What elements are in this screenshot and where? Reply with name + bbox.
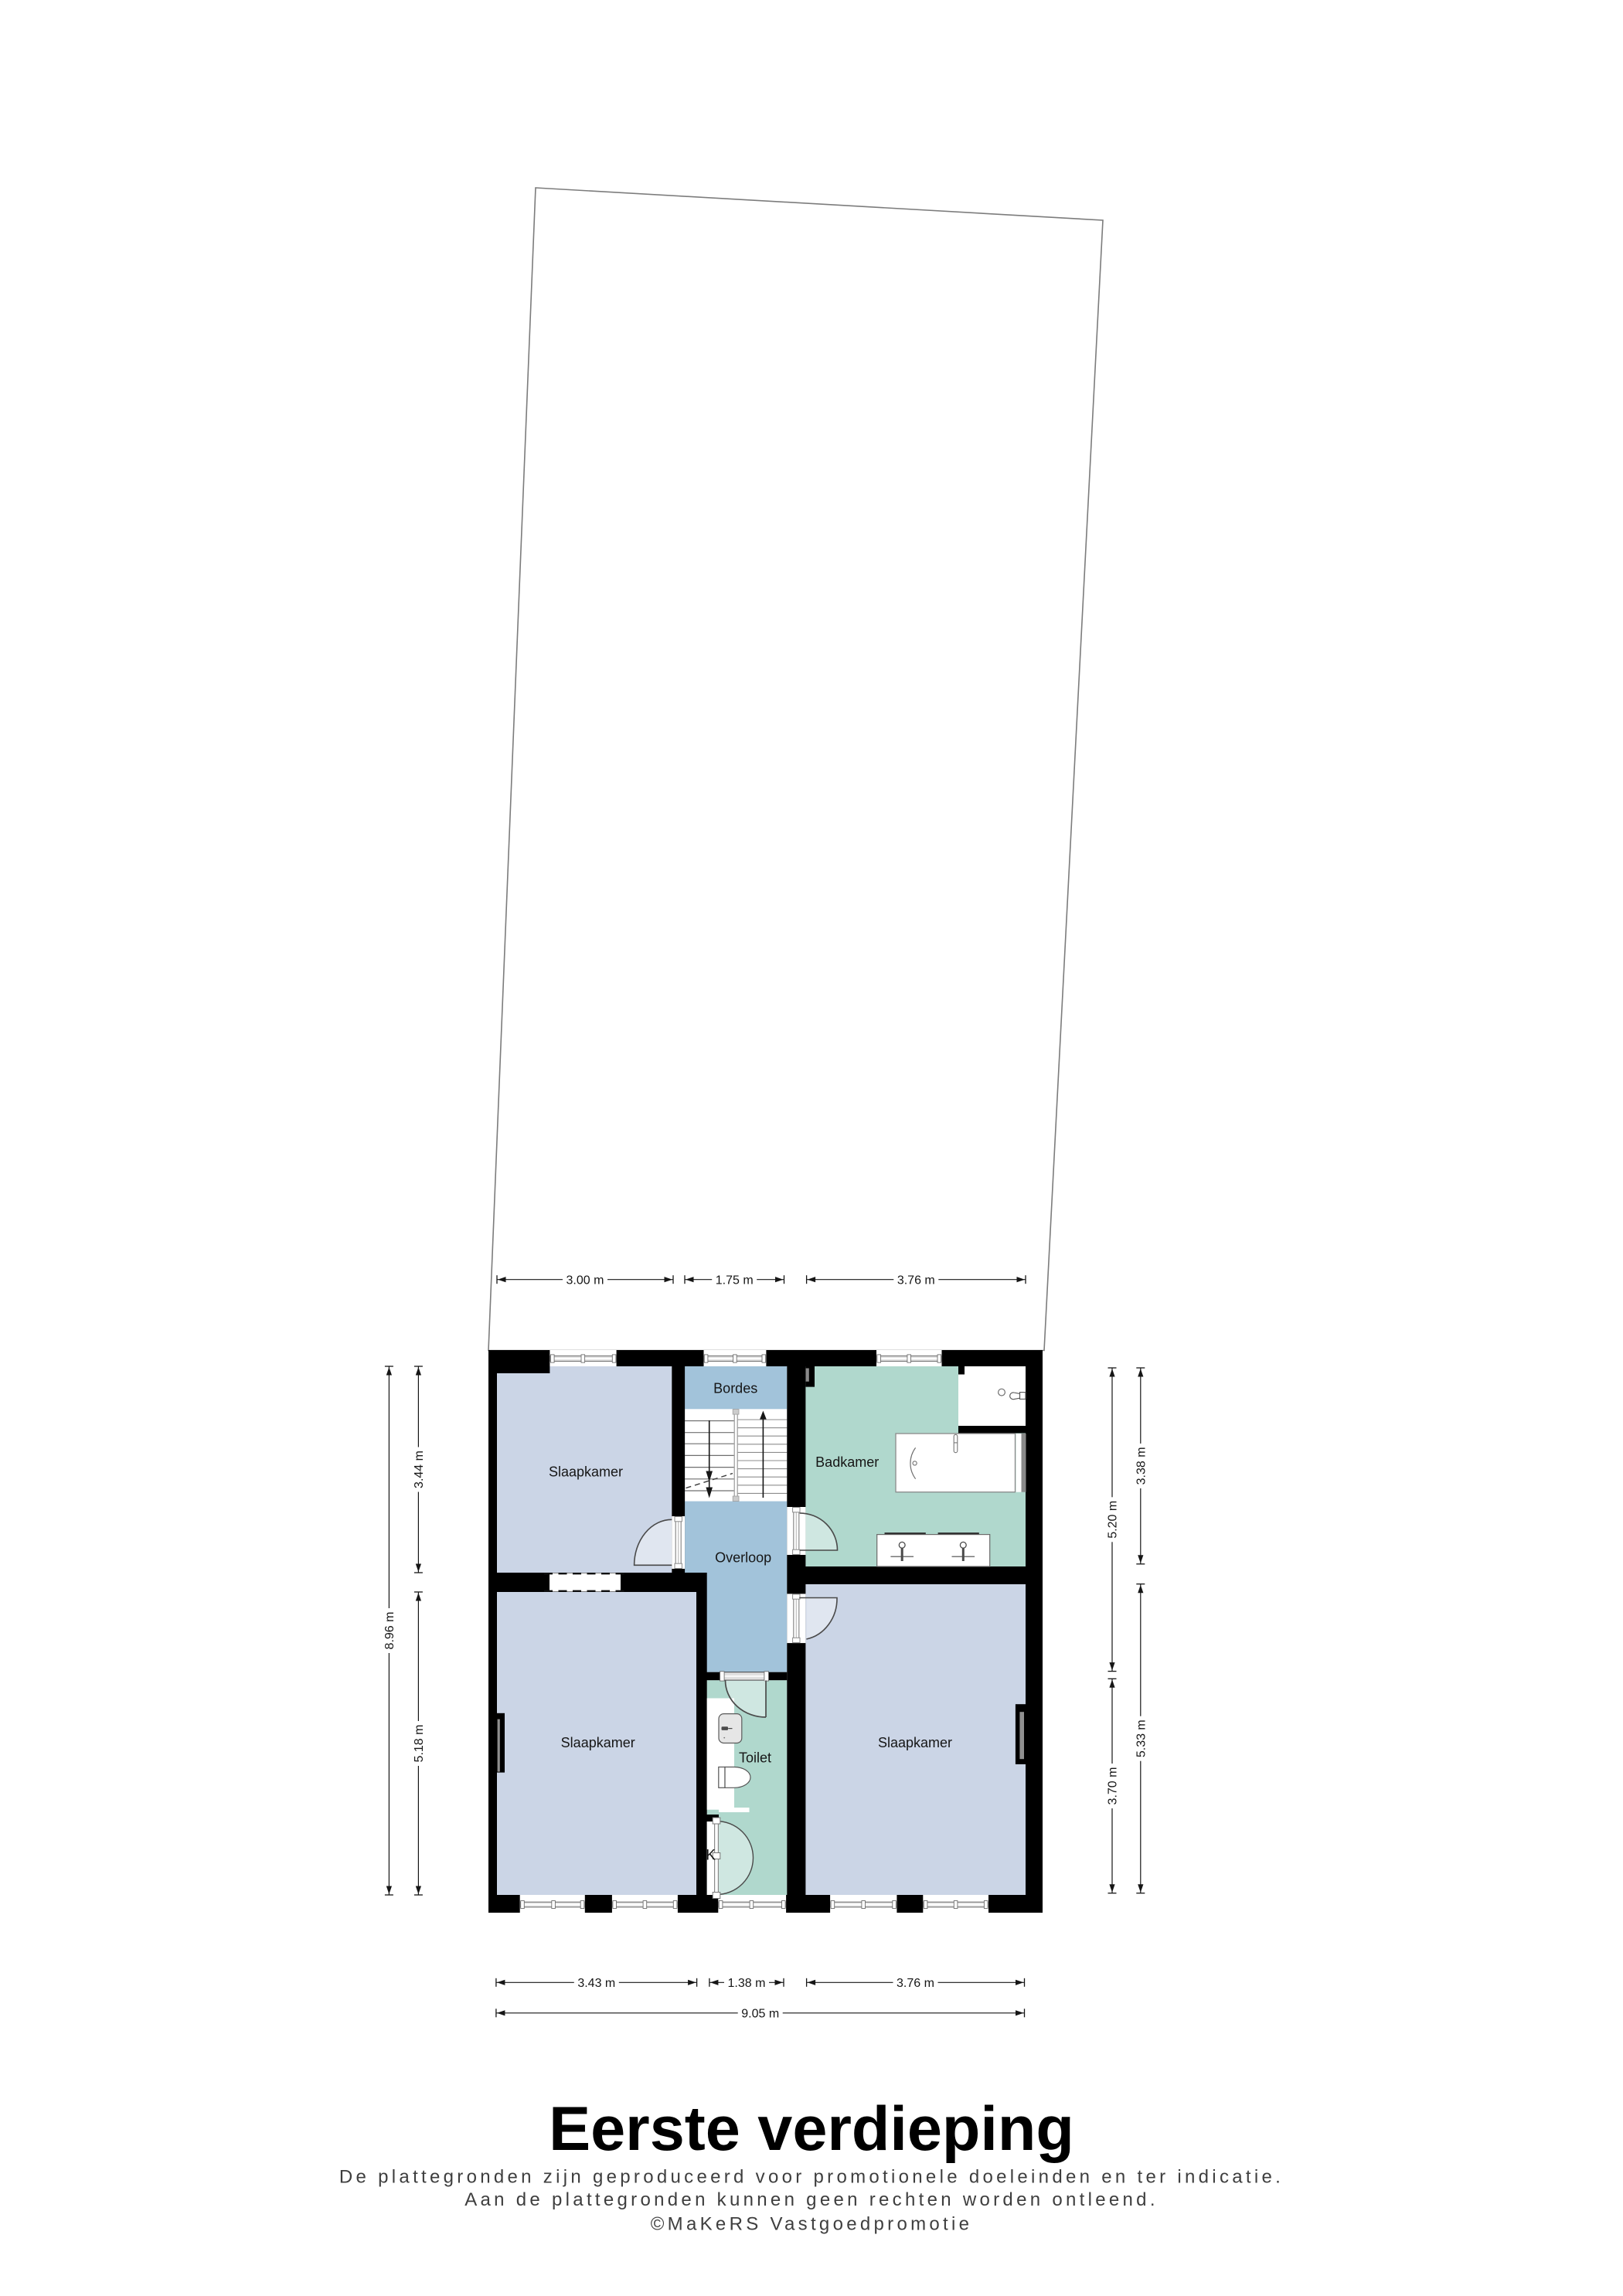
svg-text:Aan de plattegronden kunnen ge: Aan de plattegronden kunnen geen rechten… — [464, 2189, 1159, 2210]
svg-text:1.38 m: 1.38 m — [728, 1977, 766, 1990]
svg-text:Slaapkamer: Slaapkamer — [549, 1464, 623, 1480]
svg-text:Slaapkamer: Slaapkamer — [561, 1735, 635, 1750]
svg-text:1.75 m: 1.75 m — [716, 1274, 754, 1287]
svg-text:3.00 m: 3.00 m — [567, 1274, 604, 1287]
svg-text:5.20 m: 5.20 m — [1107, 1501, 1120, 1539]
svg-text:3.38 m: 3.38 m — [1135, 1447, 1148, 1485]
svg-text:8.96 m: 8.96 m — [383, 1612, 396, 1650]
svg-text:5.33 m: 5.33 m — [1135, 1719, 1148, 1757]
svg-text:Bordes: Bordes — [713, 1381, 757, 1396]
svg-text:9.05 m: 9.05 m — [741, 2008, 779, 2021]
svg-text:5.18 m: 5.18 m — [413, 1725, 426, 1763]
svg-text:3.70 m: 3.70 m — [1107, 1767, 1120, 1805]
svg-text:Badkamer: Badkamer — [815, 1454, 879, 1470]
svg-text:De plattegronden zijn geproduc: De plattegronden zijn geproduceerd voor … — [339, 2167, 1284, 2188]
svg-text:3.76 m: 3.76 m — [897, 1977, 934, 1990]
svg-text:Overloop: Overloop — [715, 1549, 771, 1565]
svg-text:3.43 m: 3.43 m — [577, 1977, 615, 1990]
svg-text:K: K — [706, 1847, 716, 1863]
svg-text:Toilet: Toilet — [739, 1750, 771, 1766]
svg-text:3.44 m: 3.44 m — [413, 1451, 426, 1488]
svg-text:Eerste verdieping: Eerste verdieping — [549, 2094, 1074, 2164]
svg-text:©MaKeRS Vastgoedpromotie: ©MaKeRS Vastgoedpromotie — [651, 2214, 973, 2235]
svg-text:Slaapkamer: Slaapkamer — [878, 1735, 952, 1750]
svg-text:3.76 m: 3.76 m — [897, 1274, 935, 1287]
